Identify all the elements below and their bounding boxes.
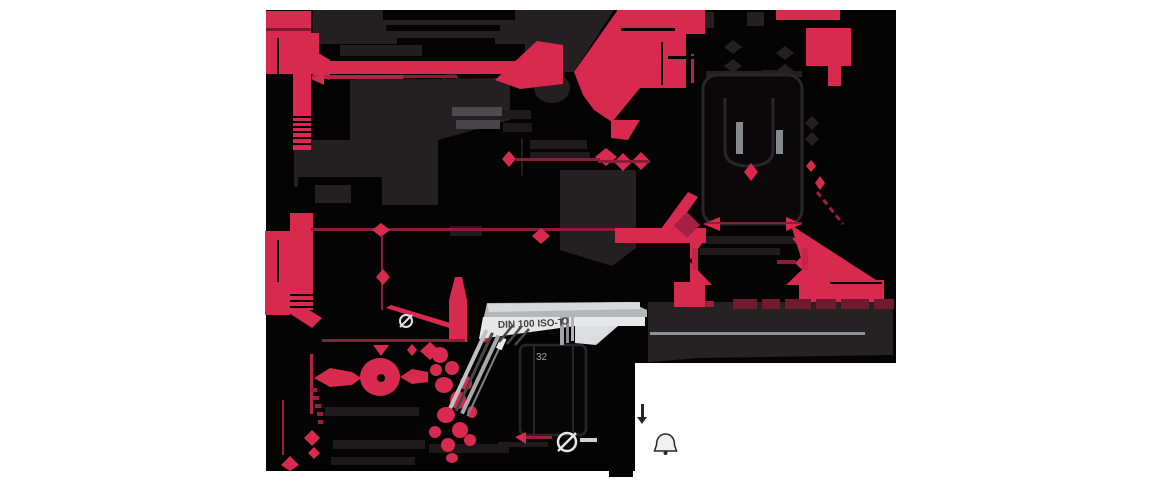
svg-text:32: 32	[536, 352, 548, 363]
svg-text:DIN 100 ISO-T: DIN 100 ISO-T	[498, 318, 564, 331]
